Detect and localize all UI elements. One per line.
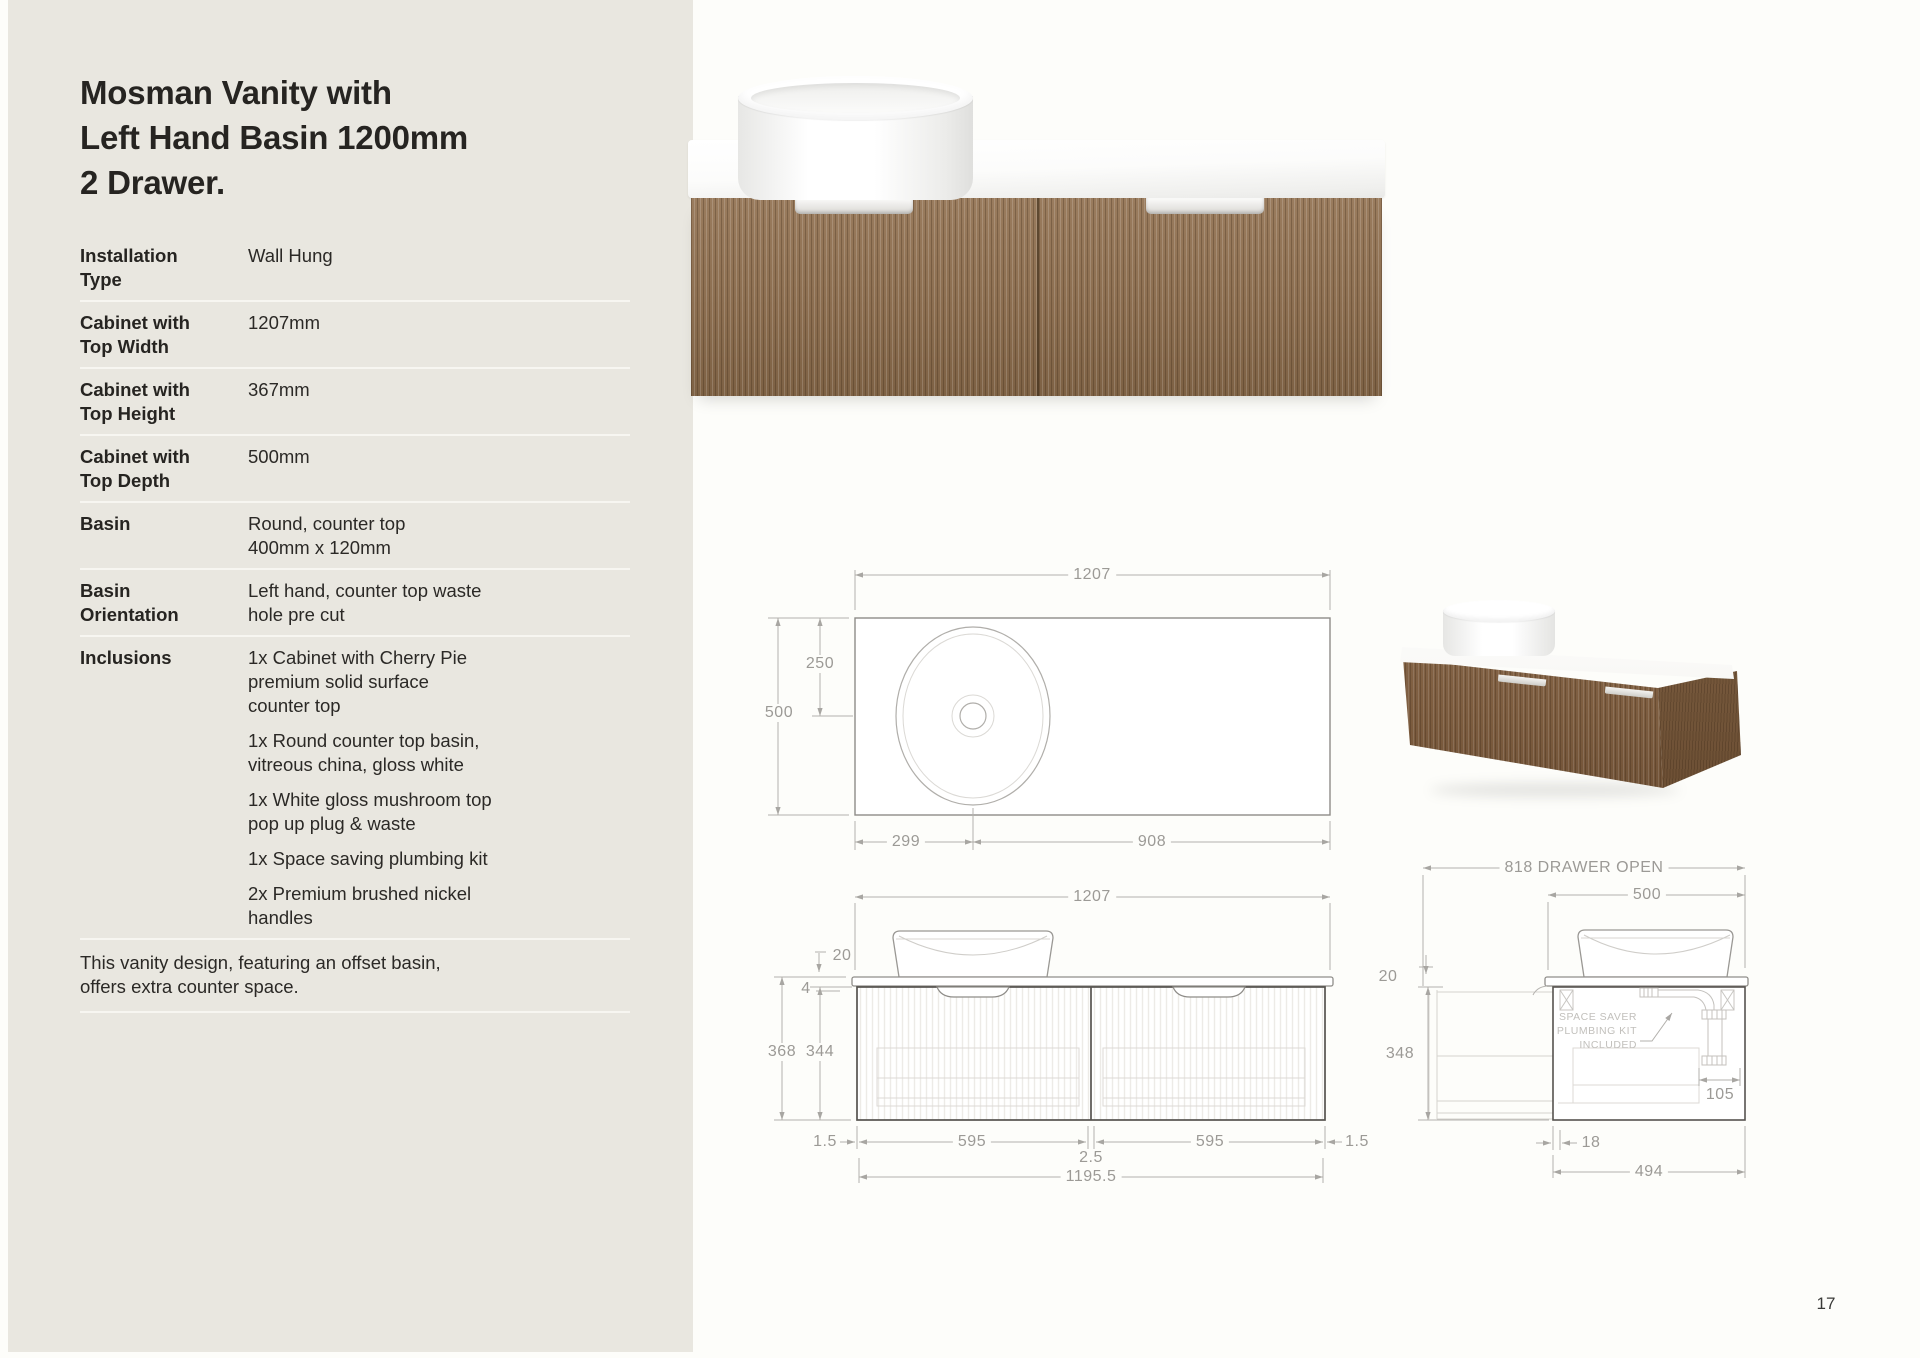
spec-row-top-width: Cabinet with Top Width 1207mm [80, 302, 630, 369]
spec-row-inclusions: Inclusions 1x Cabinet with Cherry Pie pr… [80, 637, 630, 940]
dim-label: 250 [801, 655, 839, 673]
dim-label: 299 [887, 833, 925, 851]
spec-table: Installation Type Wall Hung Cabinet with… [80, 235, 630, 1013]
spec-value: Round, counter top 400mm x 120mm [248, 512, 630, 560]
dim-label: 1.5 [1345, 1133, 1369, 1151]
dim-label: 595 [1191, 1133, 1229, 1151]
spec-value: 367mm [248, 378, 630, 426]
dim-label: 2.5 [1079, 1149, 1103, 1167]
spec-label: Cabinet with Top Width [80, 311, 248, 359]
spec-label: Basin Orientation [80, 579, 248, 627]
spec-label: Inclusions [80, 646, 248, 930]
inclusion-item: 1x Space saving plumbing kit [248, 847, 630, 871]
spec-label: Installation Type [80, 244, 248, 292]
spec-sidebar: Mosman Vanity with Left Hand Basin 1200m… [8, 0, 693, 1352]
cabinet [691, 198, 1382, 396]
inclusion-item: 1x Cabinet with Cherry Pie premium solid… [248, 646, 630, 718]
spec-row-top-height: Cabinet with Top Height 367mm [80, 369, 630, 436]
round-basin [1443, 600, 1555, 656]
dim-label: 1.5 [813, 1133, 837, 1151]
drawer-handle-right [1146, 198, 1264, 214]
drawer-divider [1037, 198, 1039, 396]
spec-value: Wall Hung [248, 244, 630, 292]
dim-label: 20 [1379, 968, 1398, 986]
spec-row-top-depth: Cabinet with Top Depth 500mm [80, 436, 630, 503]
dim-label: 1207 [1068, 888, 1116, 906]
dim-label: 18 [1582, 1134, 1601, 1152]
dim-label: 595 [953, 1133, 991, 1151]
inclusion-item: 1x Round counter top basin, vitreous chi… [248, 729, 630, 777]
inclusion-item: 1x White gloss mushroom top pop up plug … [248, 788, 630, 836]
spec-row-installation-type: Installation Type Wall Hung [80, 235, 630, 302]
dim-label: 494 [1630, 1163, 1668, 1181]
dim-label: 908 [1133, 833, 1171, 851]
front-view [774, 897, 1342, 1183]
round-basin [738, 76, 973, 200]
spec-label: Cabinet with Top Height [80, 378, 248, 426]
dim-label: 4 [801, 980, 810, 998]
dim-label: 818 DRAWER OPEN [1500, 859, 1669, 877]
dim-label: 1207 [1068, 566, 1116, 584]
inclusion-item: 2x Premium brushed nickel handles [248, 882, 630, 930]
dim-label: 105 [1706, 1086, 1734, 1104]
product-photo-angle [1400, 585, 1745, 810]
spec-value: 500mm [248, 445, 630, 493]
spec-value: 1207mm [248, 311, 630, 359]
product-title: Mosman Vanity with Left Hand Basin 1200m… [80, 70, 636, 205]
product-photo-main [688, 58, 1388, 403]
spec-value: Left hand, counter top waste hole pre cu… [248, 579, 630, 627]
dim-label: 348 [1386, 1045, 1414, 1063]
spec-row-basin-orientation: Basin Orientation Left hand, counter top… [80, 570, 630, 637]
dim-label: 1195.5 [1061, 1168, 1122, 1186]
plan-view [768, 570, 1330, 850]
dim-label: 500 [760, 704, 798, 722]
dim-label: 344 [801, 1043, 839, 1061]
spec-row-basin: Basin Round, counter top 400mm x 120mm [80, 503, 630, 570]
design-note: This vanity design, featuring an offset … [80, 940, 630, 1013]
catalog-page: { "page": { "number": "17" }, "sidebar":… [0, 0, 1920, 1358]
dim-label: 368 [763, 1043, 801, 1061]
spec-label: Cabinet with Top Depth [80, 445, 248, 493]
drawer-handle-left [795, 198, 913, 214]
dim-label: 20 [833, 947, 852, 965]
plumbing-kit-annotation: SPACE SAVER PLUMBING KIT INCLUDED [1549, 1010, 1637, 1052]
page-number: 17 [1806, 1294, 1846, 1314]
spec-label: Basin [80, 512, 248, 560]
inclusions-list: 1x Cabinet with Cherry Pie premium solid… [248, 646, 630, 930]
dim-label: 500 [1628, 886, 1666, 904]
